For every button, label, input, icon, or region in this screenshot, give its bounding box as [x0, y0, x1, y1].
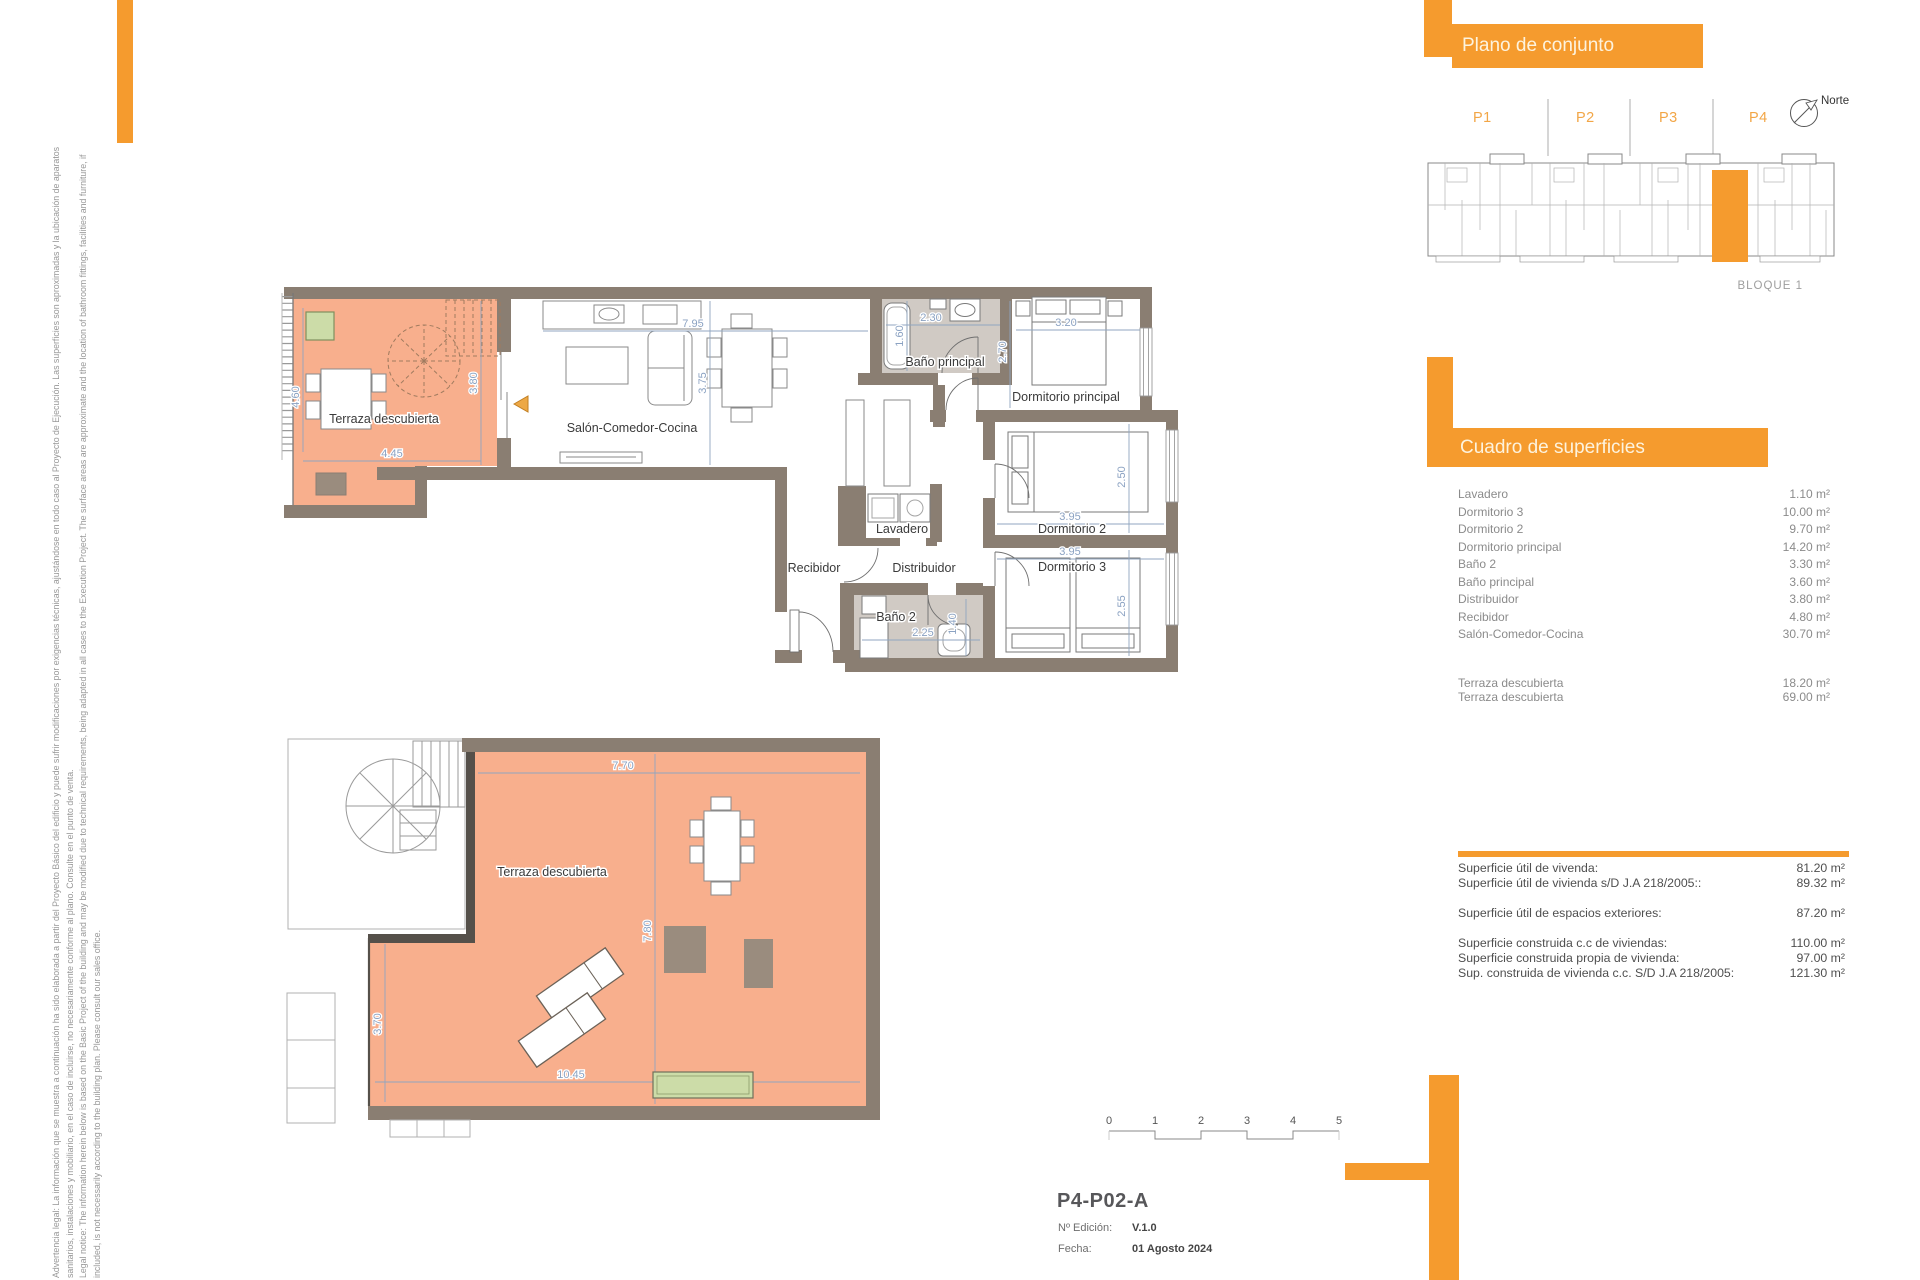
surface-value: 3.30 m²: [1789, 557, 1830, 571]
surface-value: 1.10 m²: [1789, 487, 1830, 501]
brand-bar-bottom-horizontal: [1345, 1163, 1459, 1180]
surface-label: Dormitorio 2: [1458, 522, 1523, 536]
summary-label: Superficie útil de vivienda s/D J.A 218/…: [1458, 876, 1701, 890]
surface-label: Terraza descubierta: [1458, 690, 1563, 704]
summary-value: 97.00 m²: [1796, 951, 1845, 965]
label-dormp: Dormitorio principal: [1012, 390, 1120, 404]
summary-row: Sup. construida de vivienda c.c. S/D J.A…: [1458, 966, 1845, 980]
surface-label: Distribuidor: [1458, 592, 1519, 606]
site-building-terrace-slabs: [1436, 256, 1820, 262]
summary-label: Superficie útil de espacios exteriores:: [1458, 906, 1662, 920]
surface-value: 9.70 m²: [1789, 522, 1830, 536]
surfaces-header: Cuadro de superficies: [1427, 428, 1768, 467]
surface-row-terrace: Terraza descubierta69.00 m²: [1458, 690, 1830, 704]
scale-tick-4: 4: [1290, 1115, 1296, 1127]
plan-code: P4-P02-A: [1057, 1190, 1149, 1213]
summary-label: Sup. construida de vivienda c.c. S/D J.A…: [1458, 966, 1734, 980]
date-label: Fecha:: [1058, 1243, 1092, 1255]
plan-sheet: Advertencia legal: La información que se…: [0, 0, 1920, 1280]
entry-marker-triangle: [514, 396, 528, 412]
edition-value: V.1.0: [1132, 1222, 1157, 1234]
summary-row: Superficie útil de vivenda:81.20 m²: [1458, 861, 1845, 875]
dim-1045: 10.45: [557, 1069, 585, 1081]
surface-label: Baño principal: [1458, 575, 1534, 589]
surfaces-header-label: Cuadro de superficies: [1460, 437, 1645, 459]
surface-value: 4.80 m²: [1789, 610, 1830, 624]
surface-value: 3.60 m²: [1789, 575, 1830, 589]
north-compass-icon: [1791, 100, 1818, 127]
summary-label: Superficie construida propia de vivienda…: [1458, 951, 1679, 965]
surface-value: 30.70 m²: [1783, 627, 1830, 641]
dim-795: 7.95: [682, 318, 703, 330]
dim-445: 4.45: [381, 448, 402, 460]
surface-row: Dormitorio 310.00 m²: [1458, 505, 1830, 519]
date-value: 01 Agosto 2024: [1132, 1243, 1212, 1255]
surface-row: Dormitorio principal14.20 m²: [1458, 540, 1830, 554]
surface-row-terrace: Terraza descubierta18.20 m²: [1458, 676, 1830, 690]
scale-tick-2: 2: [1198, 1115, 1204, 1127]
surface-value: 3.80 m²: [1789, 592, 1830, 606]
surface-row: Distribuidor3.80 m²: [1458, 592, 1830, 606]
site-plan-dividers: [1548, 99, 1713, 156]
dim-225: 2.25: [912, 627, 933, 639]
dim-230: 2.30: [920, 312, 941, 324]
label-lavadero: Lavadero: [876, 522, 928, 536]
terrace-table-block-1: [664, 926, 706, 973]
lower-bottom-steps: [390, 1120, 470, 1137]
site-plan-header: Plano de conjunto: [1452, 24, 1703, 68]
planter-box: [306, 312, 334, 340]
terrace-table-block-2: [744, 939, 773, 988]
dim-320: 3.20: [1055, 317, 1076, 329]
label-bano2: Baño 2: [876, 610, 916, 624]
summary-row: Superficie construida c.c de viviendas:1…: [1458, 936, 1845, 950]
surface-label: Recibidor: [1458, 610, 1509, 624]
summary-rule: [1458, 851, 1849, 857]
dim-780: 7.80: [642, 920, 654, 941]
surface-label: Lavadero: [1458, 487, 1508, 501]
surface-label: Dormitorio 3: [1458, 505, 1523, 519]
lavadero-fixtures: [868, 494, 930, 522]
lower-floor-plan: 7.70 7.80 3.70 10.45 Terraza descubierta: [270, 725, 910, 1145]
legal-line-es-2: sanitarios, instalaciones y mobiliario, …: [64, 22, 78, 1278]
surface-row: Baño principal3.60 m²: [1458, 575, 1830, 589]
dormp-furniture: [1016, 297, 1122, 385]
dim-160: 1.60: [894, 325, 906, 346]
surface-value: 69.00 m²: [1783, 690, 1830, 704]
site-plan-drawing: Norte BLOQUE 1: [1420, 85, 1860, 300]
label-banop: Baño principal: [905, 355, 984, 369]
label-terraza-lower: Terraza descubierta: [497, 865, 607, 879]
dim-270: 2.70: [997, 341, 1009, 362]
surface-value: 10.00 m²: [1783, 505, 1830, 519]
surface-label: Dormitorio principal: [1458, 540, 1561, 554]
dim-770: 7.70: [612, 760, 633, 772]
brand-bar-top-left: [117, 0, 133, 143]
dim-395b: 3.95: [1059, 546, 1080, 558]
site-plan-header-label: Plano de conjunto: [1462, 35, 1614, 57]
label-distribuidor: Distribuidor: [892, 561, 955, 575]
brand-stub-plano: [1424, 0, 1452, 57]
scale-tick-5: 5: [1336, 1115, 1342, 1127]
highlighted-unit-p4: [1712, 170, 1748, 262]
bloque-label: BLOQUE 1: [1737, 280, 1803, 292]
scale-tick-1: 1: [1152, 1115, 1158, 1127]
surface-row: Baño 23.30 m²: [1458, 557, 1830, 571]
summary-row: Superficie útil de espacios exteriores:8…: [1458, 906, 1845, 920]
label-dorm3: Dormitorio 3: [1038, 560, 1106, 574]
surface-value: 18.20 m²: [1783, 676, 1830, 690]
dim-370: 3.70: [372, 1013, 384, 1034]
summary-row: Superficie construida propia de vivienda…: [1458, 951, 1845, 965]
legal-line-es-1: Advertencia legal: La información que se…: [50, 22, 64, 1278]
dim-460: 4.60: [290, 386, 302, 407]
summary-label: Superficie construida c.c de viviendas:: [1458, 936, 1667, 950]
surface-value: 14.20 m²: [1783, 540, 1830, 554]
storage-box: [316, 473, 346, 495]
scale-tick-0: 0: [1106, 1115, 1112, 1127]
north-label: Norte: [1821, 95, 1849, 107]
summary-value: 81.20 m²: [1796, 861, 1845, 875]
legal-disclaimer: Advertencia legal: La información que se…: [50, 22, 104, 1278]
legal-line-en-2: included, is not necessarily according t…: [91, 22, 105, 1278]
summary-value: 89.32 m²: [1796, 876, 1845, 890]
surface-row: Salón-Comedor-Cocina30.70 m²: [1458, 627, 1830, 641]
upper-floor-plan: 7.95 3.75 3.80 4.60 4.45 1.60 2.30 3.20 …: [270, 275, 1200, 695]
surface-row: Dormitorio 29.70 m²: [1458, 522, 1830, 536]
edition-label: Nº Edición:: [1058, 1222, 1112, 1234]
dim-375: 3.75: [697, 372, 709, 393]
scale-tick-3: 3: [1244, 1115, 1250, 1127]
label-dorm2: Dormitorio 2: [1038, 522, 1106, 536]
dining-table: [722, 329, 772, 407]
surface-label: Baño 2: [1458, 557, 1496, 571]
legal-line-en-1: Legal notice: The information herein bel…: [77, 22, 91, 1278]
summary-value: 110.00 m²: [1791, 936, 1845, 950]
label-terraza-upper: Terraza descubierta: [329, 412, 439, 426]
label-salon: Salón-Comedor-Cocina: [567, 421, 698, 435]
dim-380: 3.80: [468, 372, 480, 393]
dim-140: 1.40: [947, 613, 959, 634]
scale-bar: 0 1 2 3 4 5: [1095, 1095, 1365, 1150]
dim-255: 2.55: [1116, 595, 1128, 616]
dim-250: 2.50: [1116, 466, 1128, 487]
summary-label: Superficie útil de vivenda:: [1458, 861, 1598, 875]
label-recibidor: Recibidor: [788, 561, 841, 575]
salon-furniture: [543, 301, 910, 486]
surface-label: Terraza descubierta: [1458, 676, 1563, 690]
summary-row: Superficie útil de vivienda s/D J.A 218/…: [1458, 876, 1845, 890]
summary-value: 121.30 m²: [1790, 966, 1845, 980]
summary-value: 87.20 m²: [1796, 906, 1845, 920]
surface-label: Salón-Comedor-Cocina: [1458, 627, 1583, 641]
surface-row: Recibidor4.80 m²: [1458, 610, 1830, 624]
surface-row: Lavadero1.10 m²: [1458, 487, 1830, 501]
